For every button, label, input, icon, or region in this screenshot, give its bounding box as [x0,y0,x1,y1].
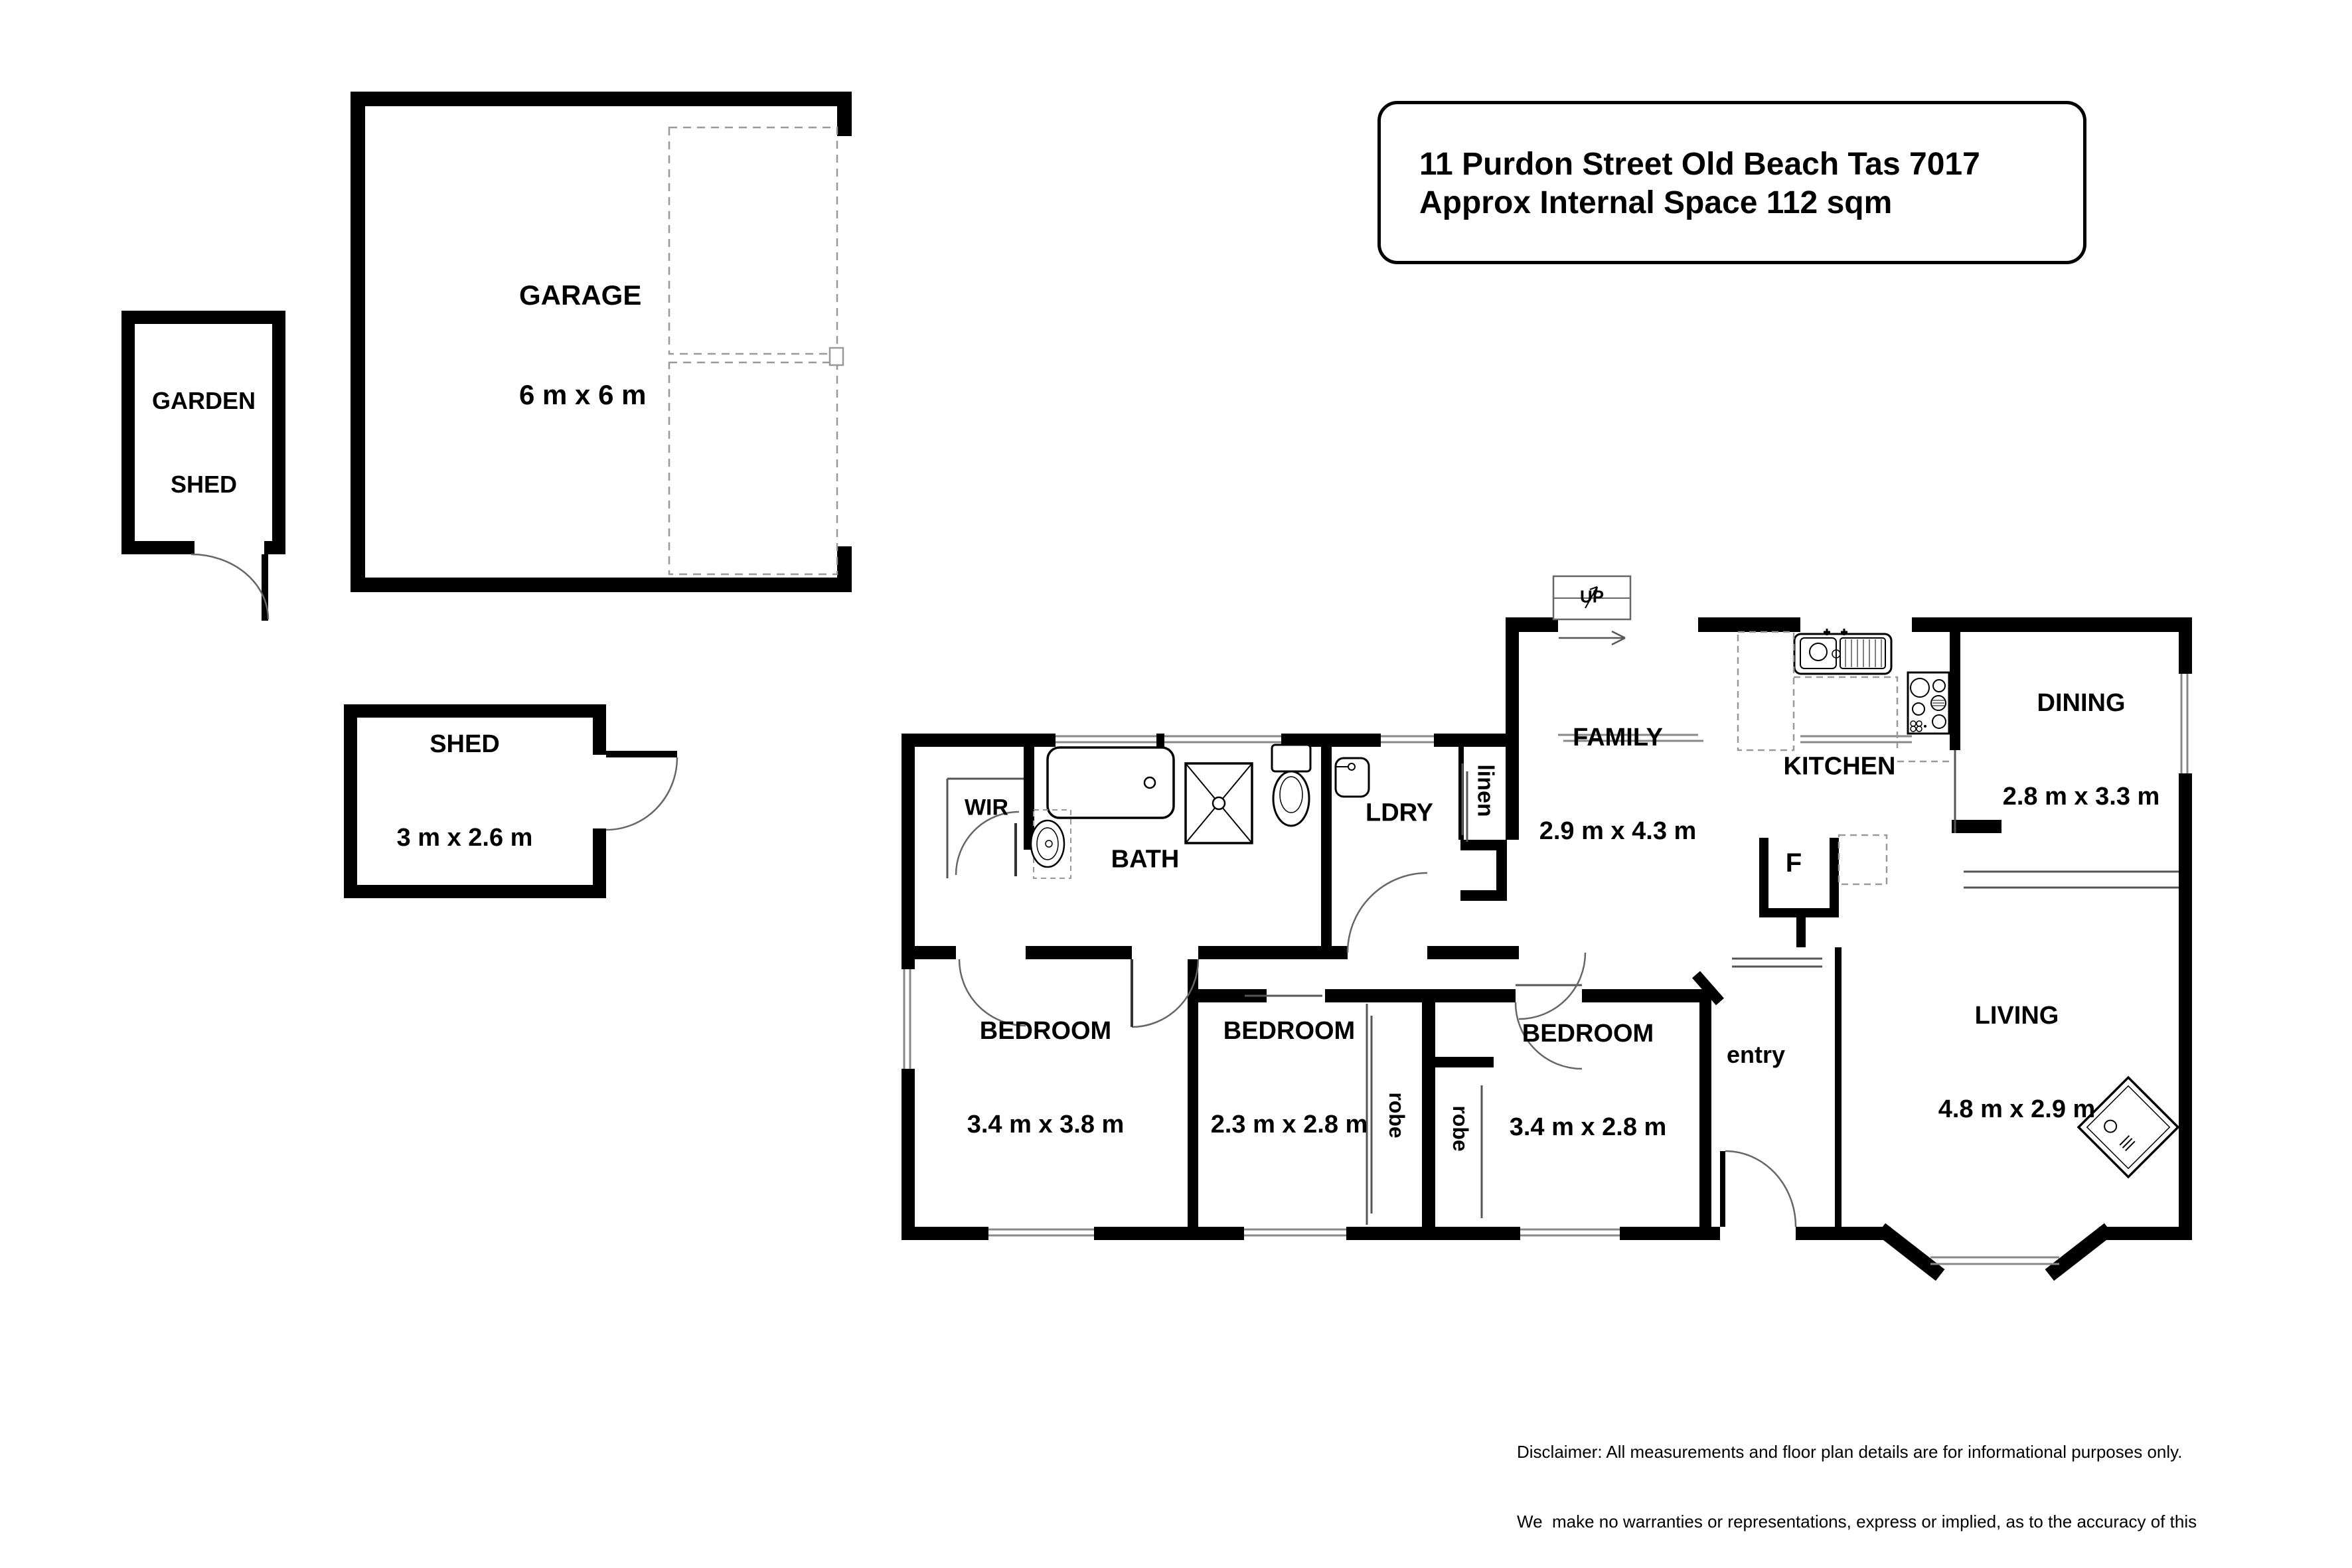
room-label-family: FAMILY 2.9 m x 4.3 m [1539,660,1697,909]
bathtub-icon [1048,747,1174,818]
address-line: 11 Purdon Street Old Beach Tas 7017 [1419,145,2083,184]
bay-window-walls [1887,1233,2103,1271]
room-label-living: LIVING 4.8 m x 2.9 m [1938,938,2096,1188]
shower-icon [1186,763,1252,843]
room-label-bedroom-3: BEDROOM 3.4 m x 2.8 m [1510,956,1667,1206]
room-label-ldry: LDRY [1366,798,1433,829]
closet-label-robe-bed3: robe [1448,1105,1473,1151]
room-label-bath: BATH [1111,844,1180,876]
floor-plan-page: 11 Purdon Street Old Beach Tas 7017 Appr… [0,0,2352,1568]
closet-label-robe-bed2: robe [1384,1092,1409,1138]
kitchen-sink-icon [1794,629,1891,674]
garage-door-panels [669,127,843,574]
disclaimer-text: Disclaimer: All measurements and floor p… [1517,1394,2219,1568]
shed-door-arc [606,757,677,830]
room-label-kitchen: KITCHEN [1784,751,1896,783]
garden-shed-label: GARDEN SHED [152,331,256,554]
vanity-basin-icon [1031,810,1071,878]
closet-label-linen: linen [1472,764,1499,817]
room-label-entry: entry [1727,1041,1785,1069]
toilet-icon [1272,745,1310,826]
laundry-tub-icon [1336,758,1369,797]
room-label-bedroom-1: BEDROOM 3.4 m x 3.8 m [967,953,1125,1203]
pantry-outline [1839,835,1887,884]
garage-label: GARAGE 6 m x 6 m [519,212,646,478]
title-box: 11 Purdon Street Old Beach Tas 7017 Appr… [1377,101,2086,264]
shed-label: SHED 3 m x 2.6 m [397,666,533,916]
sliding-door-arrow-icon [1559,631,1625,645]
garden-shed-door-arc [191,554,268,619]
fridge-label: F [1786,847,1802,879]
room-label-dining: DINING 2.8 m x 3.3 m [2003,625,2160,875]
room-label-bedroom-2: BEDROOM 2.3 m x 2.8 m [1211,953,1368,1203]
internal-space-line: Approx Internal Space 112 sqm [1419,184,2083,222]
room-label-wir: WIR [965,795,1008,822]
cooktop-icon [1908,672,1949,734]
stairs-up-label: UP [1580,586,1604,607]
